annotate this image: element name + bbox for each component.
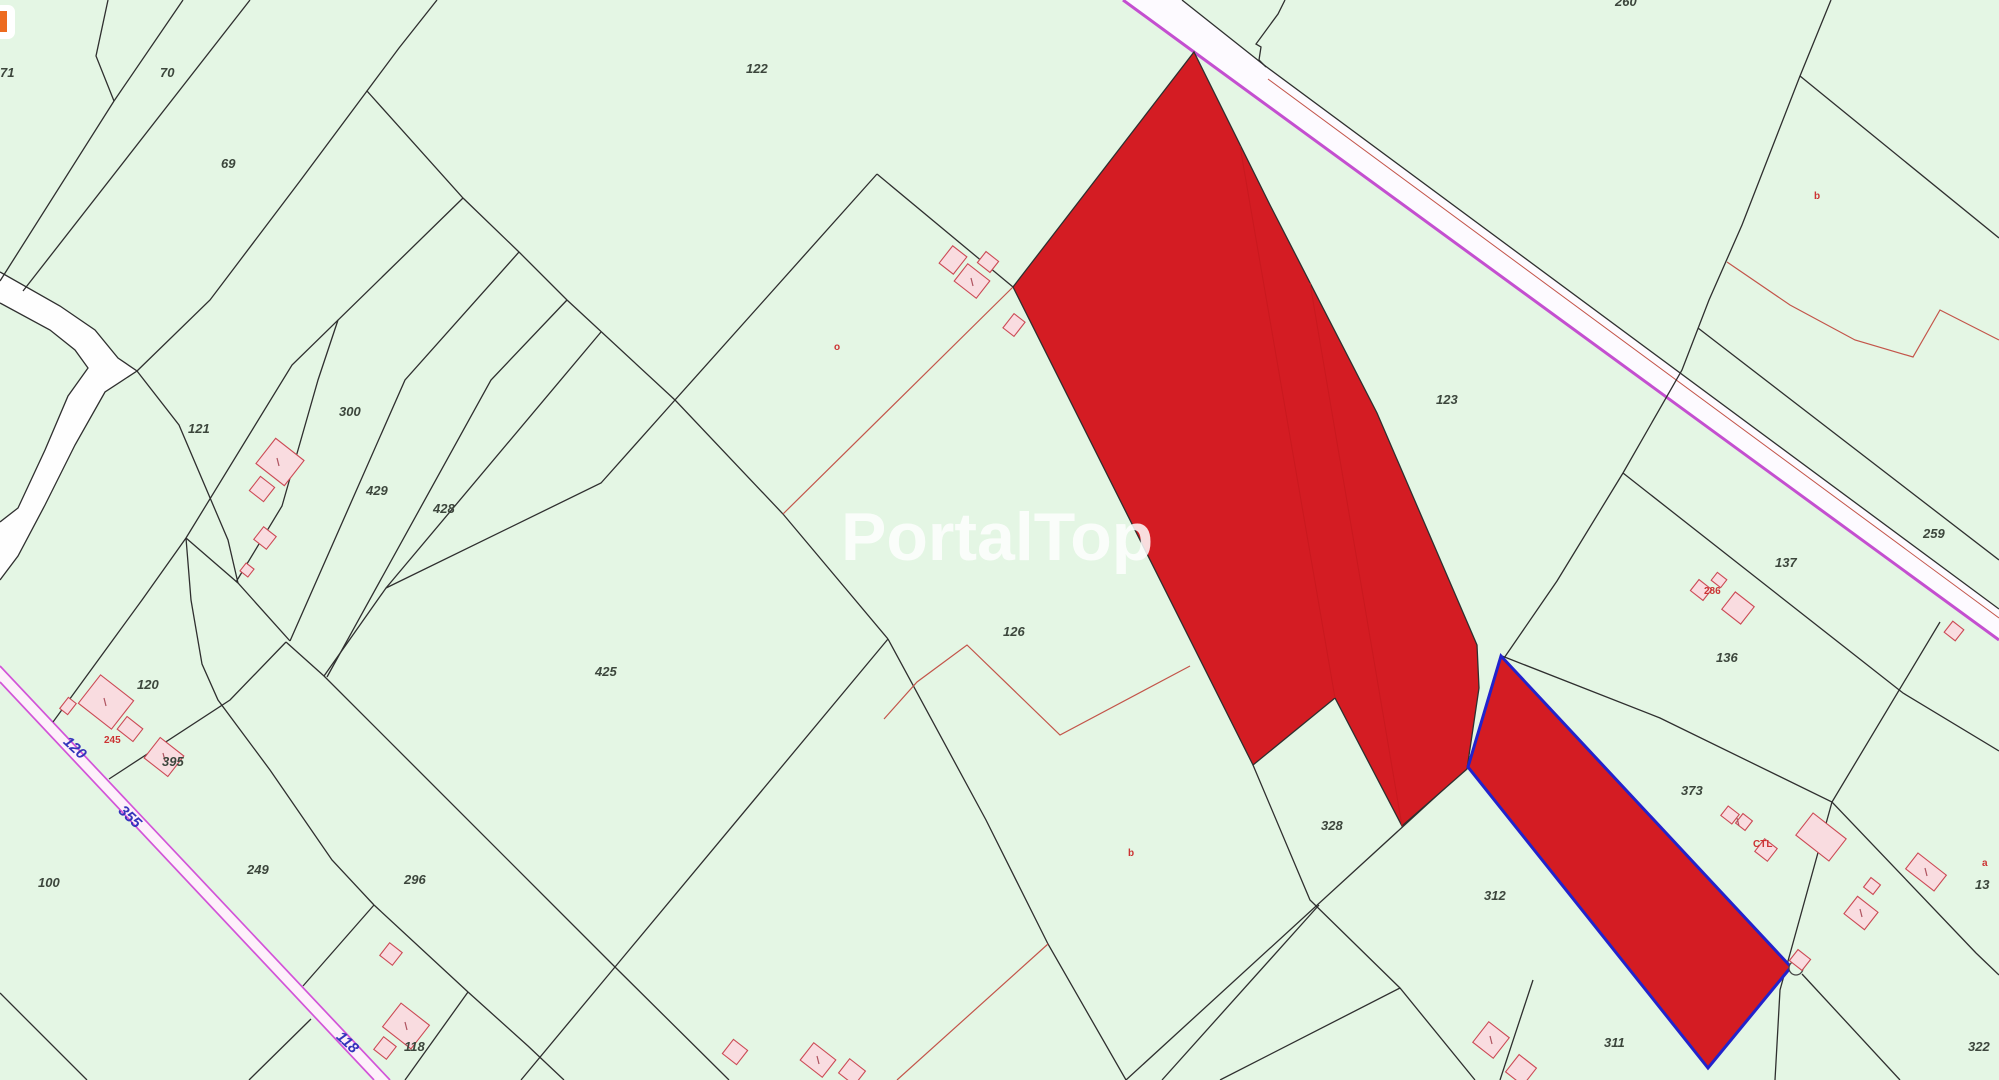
svg-text:249: 249 [246,862,269,877]
svg-text:300: 300 [339,404,361,419]
svg-text:136: 136 [1716,650,1738,665]
svg-text:286: 286 [1704,586,1721,597]
svg-text:120: 120 [137,677,159,692]
svg-text:296: 296 [403,872,426,887]
svg-text:PortalTop: PortalTop [841,499,1153,575]
svg-text:a: a [1982,858,1988,869]
svg-text:b: b [1128,848,1134,859]
svg-text:CTL: CTL [1753,839,1772,850]
svg-text:429: 429 [365,483,388,498]
svg-text:428: 428 [432,501,455,516]
svg-text:312: 312 [1484,888,1506,903]
svg-text:137: 137 [1775,555,1797,570]
svg-text:118: 118 [404,1039,425,1054]
svg-text:425: 425 [594,664,617,679]
svg-text:13: 13 [1975,877,1990,892]
svg-text:70: 70 [160,65,175,80]
svg-text:71: 71 [0,65,14,80]
svg-text:328: 328 [1321,818,1343,833]
svg-text:126: 126 [1003,624,1025,639]
svg-text:311: 311 [1604,1035,1625,1050]
svg-text:245: 245 [104,735,121,746]
svg-text:395: 395 [162,754,184,769]
svg-text:b: b [1814,191,1820,202]
svg-text:260: 260 [1614,0,1637,9]
svg-text:122: 122 [746,61,768,76]
svg-text:100: 100 [38,875,60,890]
svg-text:121: 121 [188,421,210,436]
svg-text:259: 259 [1922,526,1945,541]
svg-text:o: o [834,342,840,353]
svg-text:69: 69 [221,156,236,171]
svg-text:123: 123 [1436,392,1458,407]
svg-text:322: 322 [1968,1039,1990,1054]
svg-text:373: 373 [1681,783,1703,798]
